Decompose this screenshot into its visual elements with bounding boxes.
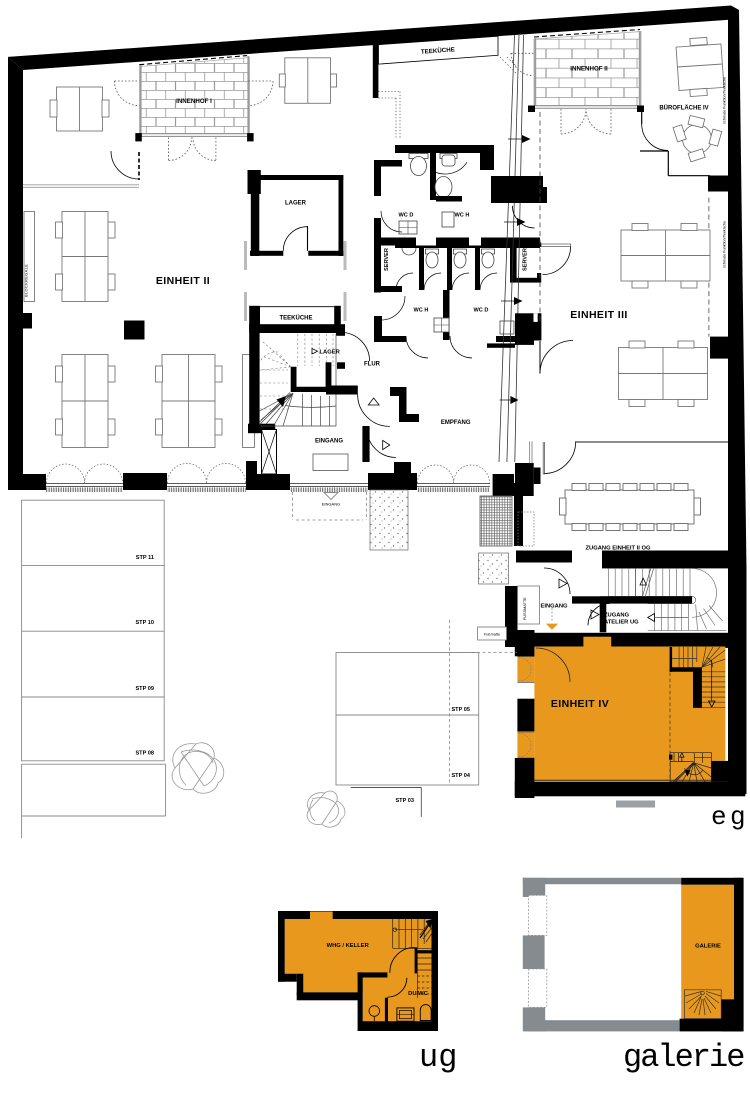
svg-text:LAGER: LAGER: [285, 201, 307, 207]
svg-text:TEEKÜCHE: TEEKÜCHE: [279, 315, 312, 322]
svg-text:eg: eg: [711, 802, 749, 832]
svg-text:EINGANG: EINGANG: [315, 439, 343, 445]
svg-text:EINGANG: EINGANG: [540, 604, 568, 610]
svg-text:FUSSMATTE: FUSSMATTE: [523, 597, 527, 620]
svg-text:ug: ug: [419, 1039, 457, 1076]
svg-text:ZUGANG: ZUGANG: [604, 613, 630, 619]
svg-text:STP 03: STP 03: [395, 798, 414, 804]
svg-text:WC D: WC D: [399, 213, 414, 219]
svg-text:EINGANG: EINGANG: [322, 502, 340, 507]
svg-text:LAGER: LAGER: [320, 350, 341, 356]
svg-text:BLOCKREGALE: BLOCKREGALE: [24, 264, 29, 297]
svg-text:WC H: WC H: [414, 308, 429, 314]
svg-text:STP 09: STP 09: [135, 686, 154, 692]
svg-text:WC H: WC H: [455, 213, 470, 219]
svg-text:INNENHOF II: INNENHOF II: [570, 66, 608, 73]
svg-text:STP 10: STP 10: [135, 620, 154, 626]
svg-text:FLUR: FLUR: [364, 362, 381, 368]
svg-text:STP 11: STP 11: [136, 555, 154, 561]
svg-text:EINHEIT III: EINHEIT III: [570, 309, 628, 321]
svg-text:STP 08: STP 08: [135, 751, 154, 757]
svg-text:DU/WC: DU/WC: [408, 991, 428, 997]
svg-text:EINHEIT II: EINHEIT II: [156, 275, 210, 287]
svg-text:ATELIER UG: ATELIER UG: [604, 620, 639, 626]
svg-text:BÜROFLÄCHE IV: BÜROFLÄCHE IV: [659, 105, 708, 112]
svg-text:STP 05: STP 05: [451, 707, 470, 713]
svg-text:GALERIE: GALERIE: [695, 944, 721, 950]
svg-text:galerie: galerie: [623, 1039, 744, 1076]
svg-text:SERVER: SERVER: [523, 248, 529, 271]
svg-text:EMPFANG: EMPFANG: [441, 420, 471, 426]
svg-text:WC D: WC D: [474, 308, 489, 314]
svg-text:INNENHOF I: INNENHOF I: [176, 98, 212, 105]
svg-text:WHG / KELLER: WHG / KELLER: [327, 943, 370, 949]
svg-text:schmale Funktion/Teeküche: schmale Funktion/Teeküche: [723, 77, 727, 124]
svg-text:STP 04: STP 04: [451, 773, 470, 779]
svg-text:Fußmatte: Fußmatte: [484, 633, 500, 637]
svg-text:EINHEIT IV: EINHEIT IV: [551, 698, 609, 710]
svg-text:schmale Funktion/Teeküche: schmale Funktion/Teeküche: [723, 221, 727, 268]
svg-text:SERVER: SERVER: [384, 248, 390, 271]
